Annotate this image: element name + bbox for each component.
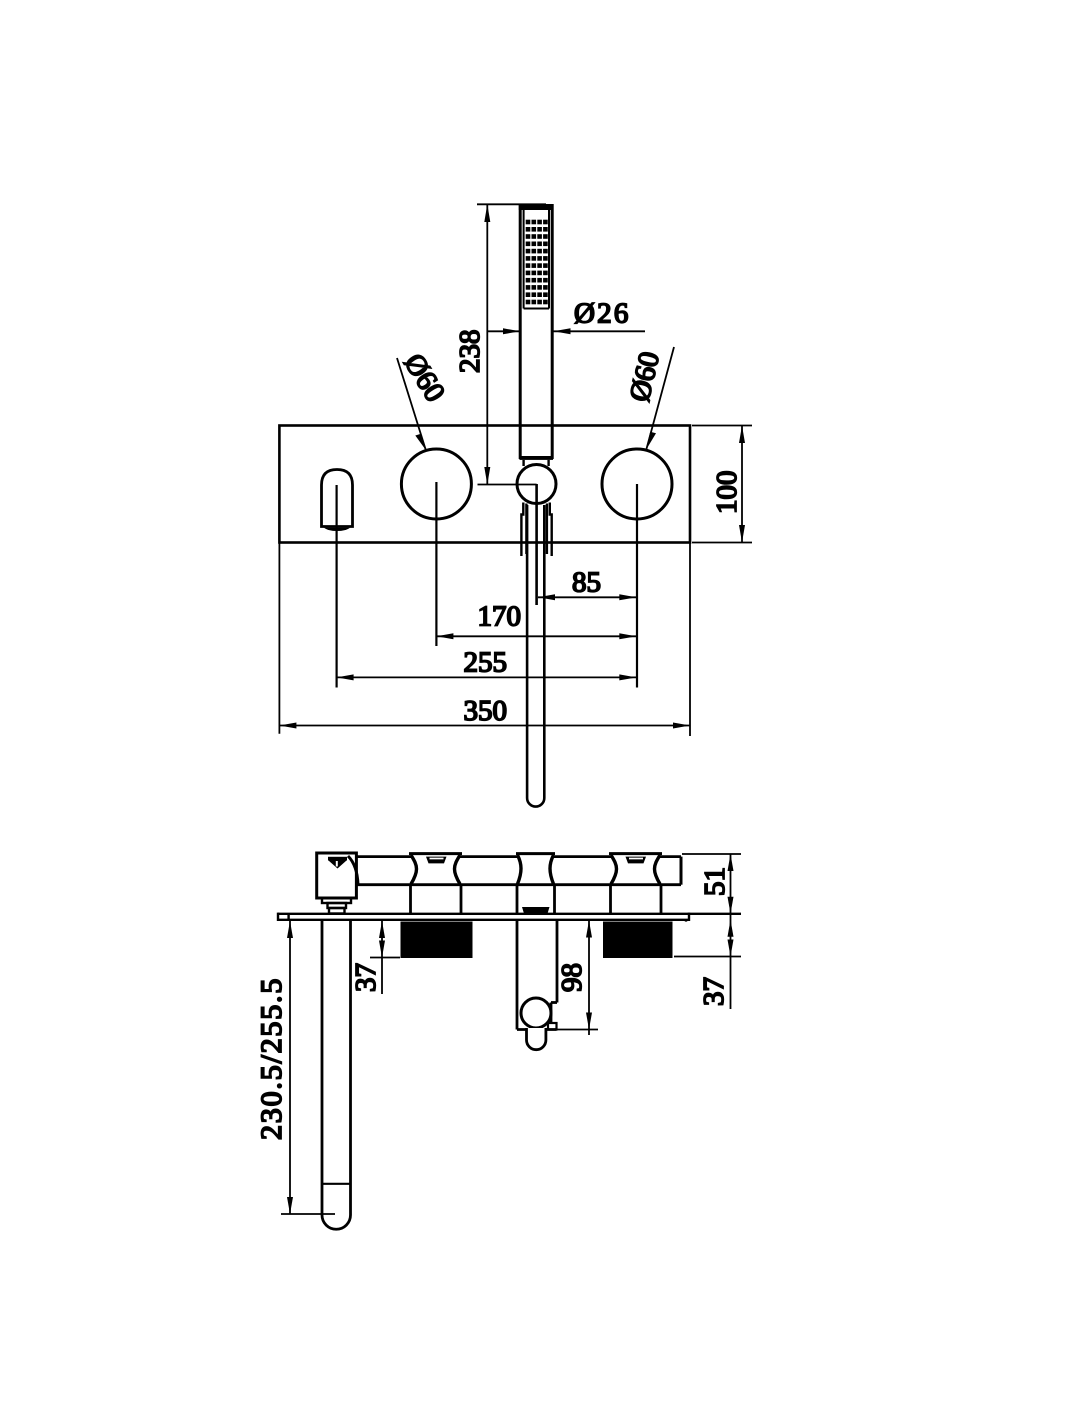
svg-text:51: 51 <box>699 867 731 896</box>
svg-text:Ø26: Ø26 <box>574 298 631 330</box>
svg-text:37: 37 <box>698 977 730 1006</box>
svg-text:100: 100 <box>711 471 743 515</box>
svg-text:Ø60: Ø60 <box>398 348 452 407</box>
svg-text:98: 98 <box>556 963 588 992</box>
svg-text:238: 238 <box>454 330 486 374</box>
svg-text:230.5/255.5: 230.5/255.5 <box>255 977 288 1140</box>
svg-text:Ø60: Ø60 <box>624 349 666 405</box>
svg-text:255: 255 <box>464 647 508 679</box>
svg-text:85: 85 <box>572 567 601 599</box>
svg-text:37: 37 <box>350 963 382 992</box>
svg-text:170: 170 <box>478 601 522 633</box>
svg-text:350: 350 <box>464 695 508 727</box>
